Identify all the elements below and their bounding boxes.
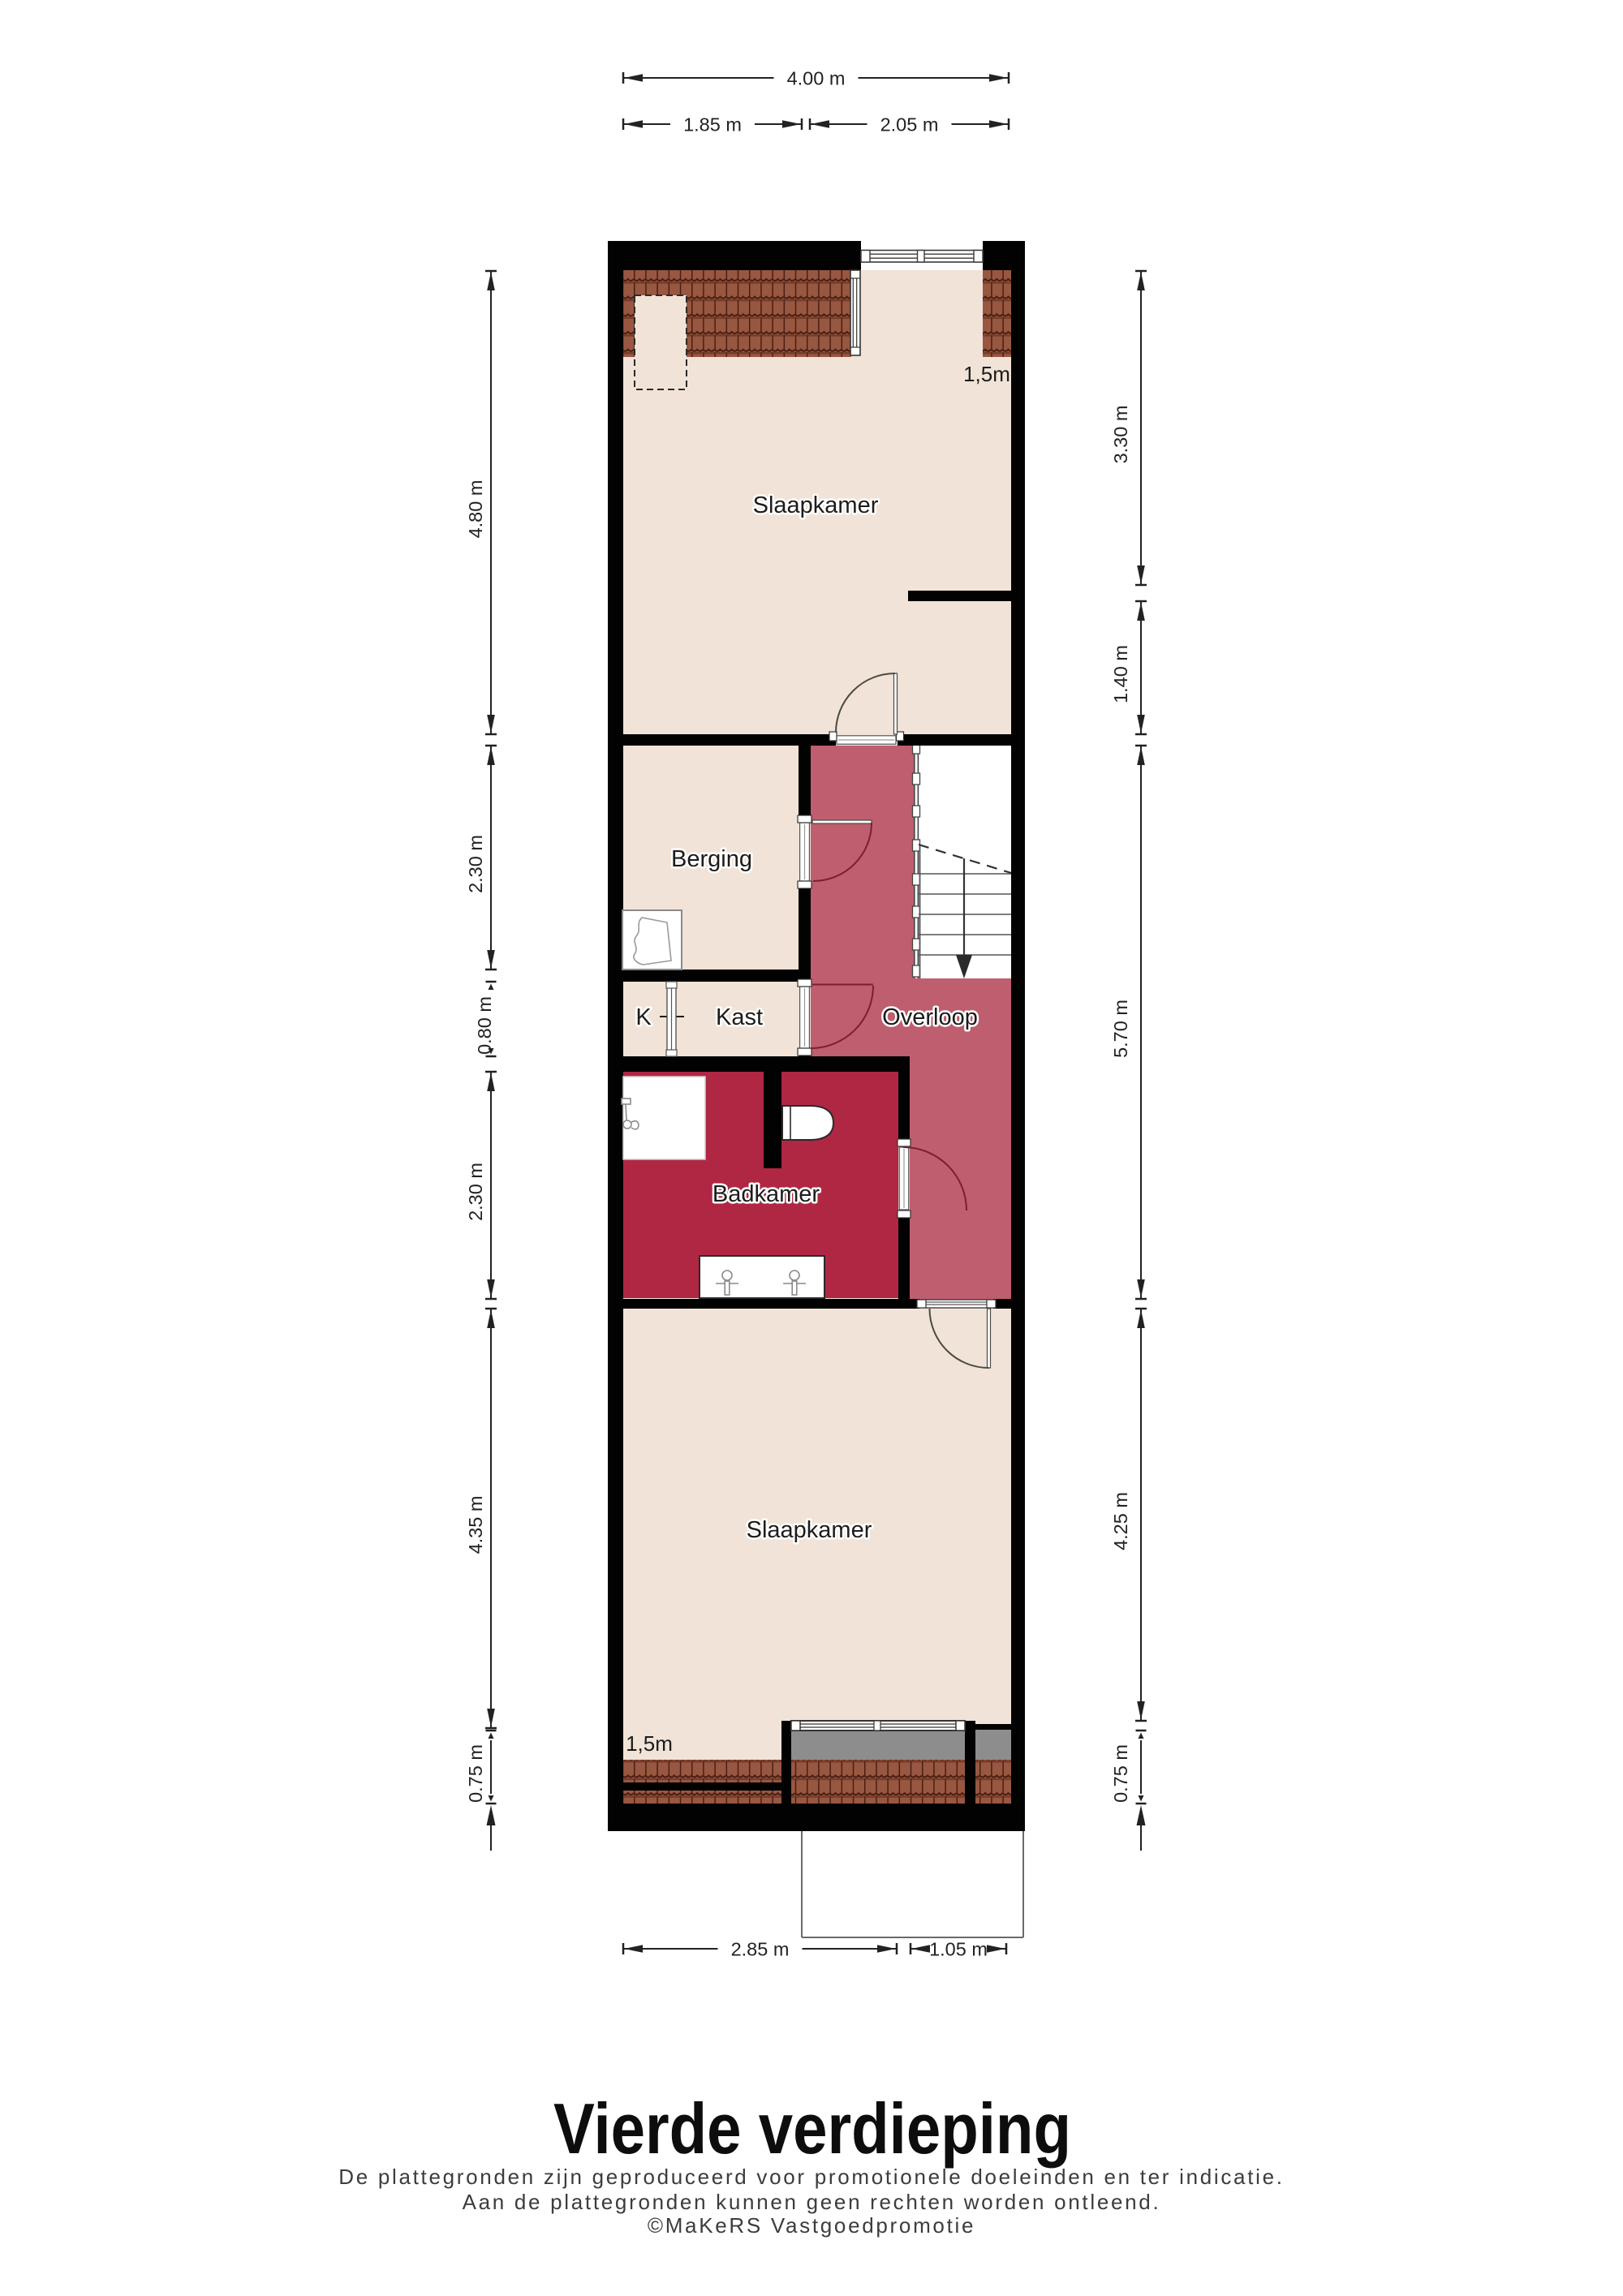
svg-text:2.85 m: 2.85 m xyxy=(731,1939,790,1960)
svg-text:©MaKeRS Vastgoedpromotie: ©MaKeRS Vastgoedpromotie xyxy=(648,2213,975,2238)
svg-text:Overloop: Overloop xyxy=(882,1004,978,1030)
svg-text:2.30 m: 2.30 m xyxy=(465,835,486,893)
svg-text:4.80 m: 4.80 m xyxy=(465,480,486,539)
svg-text:0.75 m: 0.75 m xyxy=(465,1744,486,1803)
svg-text:5.70 m: 5.70 m xyxy=(1110,1000,1131,1058)
svg-text:Slaapkamer: Slaapkamer xyxy=(747,1517,872,1543)
svg-text:Berging: Berging xyxy=(671,846,752,872)
svg-text:4.00 m: 4.00 m xyxy=(787,68,846,89)
svg-text:Vierde verdieping: Vierde verdieping xyxy=(553,2088,1071,2169)
svg-text:1,5m: 1,5m xyxy=(626,1731,673,1756)
svg-text:1.05 m: 1.05 m xyxy=(929,1939,988,1960)
svg-text:Kast: Kast xyxy=(716,1004,763,1030)
svg-text:3.30 m: 3.30 m xyxy=(1110,406,1131,464)
svg-text:1.40 m: 1.40 m xyxy=(1110,645,1131,703)
svg-text:K: K xyxy=(635,1004,652,1030)
svg-text:4.35 m: 4.35 m xyxy=(465,1496,486,1554)
svg-text:1.85 m: 1.85 m xyxy=(683,114,742,135)
svg-text:2.30 m: 2.30 m xyxy=(465,1163,486,1221)
svg-text:1,5m: 1,5m xyxy=(963,362,1010,386)
svg-text:Slaapkamer: Slaapkamer xyxy=(753,492,879,518)
svg-text:De plattegronden zijn geproduc: De plattegronden zijn geproduceerd voor … xyxy=(338,2165,1284,2189)
svg-text:Badkamer: Badkamer xyxy=(712,1181,820,1207)
svg-text:0.80 m: 0.80 m xyxy=(474,996,495,1055)
svg-text:0.75 m: 0.75 m xyxy=(1110,1744,1131,1803)
svg-text:2.05 m: 2.05 m xyxy=(880,114,939,135)
svg-text:Aan de plattegronden kunnen ge: Aan de plattegronden kunnen geen rechten… xyxy=(463,2190,1161,2214)
svg-text:4.25 m: 4.25 m xyxy=(1110,1492,1131,1550)
